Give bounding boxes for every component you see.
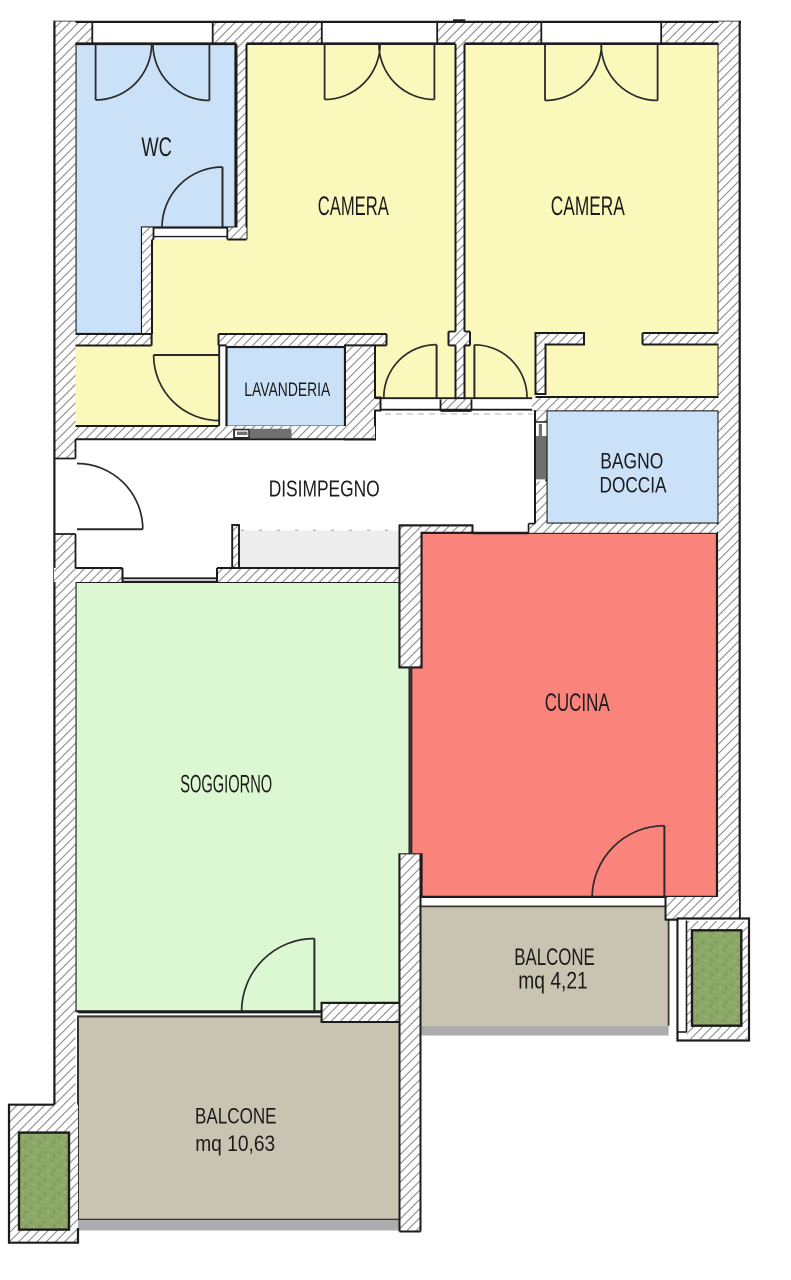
svg-text:WC: WC: [141, 132, 172, 162]
svg-text:mq 4,21: mq 4,21: [518, 967, 588, 994]
svg-text:BAGNO: BAGNO: [600, 448, 663, 473]
svg-text:DOCCIA: DOCCIA: [600, 473, 667, 498]
svg-text:DISIMPEGNO: DISIMPEGNO: [269, 475, 380, 501]
svg-text:SOGGIORNO: SOGGIORNO: [180, 770, 272, 798]
svg-text:mq 10,63: mq 10,63: [195, 1131, 275, 1156]
svg-text:LAVANDERIA: LAVANDERIA: [244, 379, 330, 401]
svg-text:BALCONE: BALCONE: [195, 1104, 277, 1129]
svg-text:CAMERA: CAMERA: [318, 191, 389, 221]
svg-text:CAMERA: CAMERA: [551, 191, 625, 221]
svg-text:CUCINA: CUCINA: [545, 689, 610, 717]
